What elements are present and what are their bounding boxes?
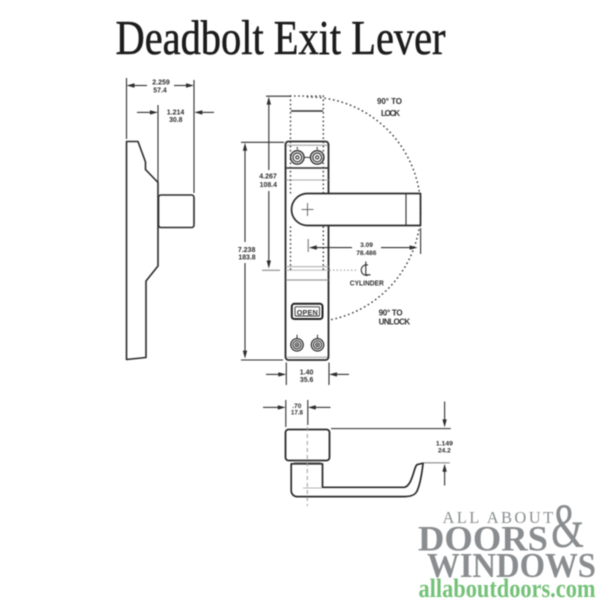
svg-text:LOCK: LOCK: [381, 109, 400, 118]
svg-text:90° TO: 90° TO: [379, 308, 403, 317]
svg-text:78.486: 78.486: [356, 250, 377, 257]
svg-text:2.259: 2.259: [152, 80, 170, 87]
svg-text:1.40: 1.40: [300, 369, 314, 376]
svg-text:3.09: 3.09: [360, 242, 373, 249]
svg-text:1.214: 1.214: [167, 109, 185, 116]
svg-text:allaboutdoors.com: allaboutdoors.com: [419, 573, 596, 600]
svg-text:UNLOCK: UNLOCK: [379, 318, 411, 327]
svg-text:183.8: 183.8: [238, 255, 255, 262]
svg-text:108.4: 108.4: [260, 182, 277, 189]
svg-text:24.2: 24.2: [438, 448, 451, 455]
svg-text:35.6: 35.6: [300, 377, 314, 384]
svg-text:1.149: 1.149: [436, 441, 453, 448]
svg-text:Deadbolt Exit Lever: Deadbolt Exit Lever: [116, 10, 446, 65]
svg-text:30.8: 30.8: [169, 117, 183, 124]
svg-text:90° TO: 90° TO: [377, 97, 402, 106]
svg-text:OPEN: OPEN: [297, 308, 318, 317]
svg-text:17.8: 17.8: [291, 409, 304, 416]
svg-text:57.4: 57.4: [153, 87, 167, 94]
svg-text:7.238: 7.238: [238, 247, 256, 254]
svg-text:CYLINDER: CYLINDER: [350, 279, 384, 288]
svg-text:4.267: 4.267: [259, 174, 277, 181]
